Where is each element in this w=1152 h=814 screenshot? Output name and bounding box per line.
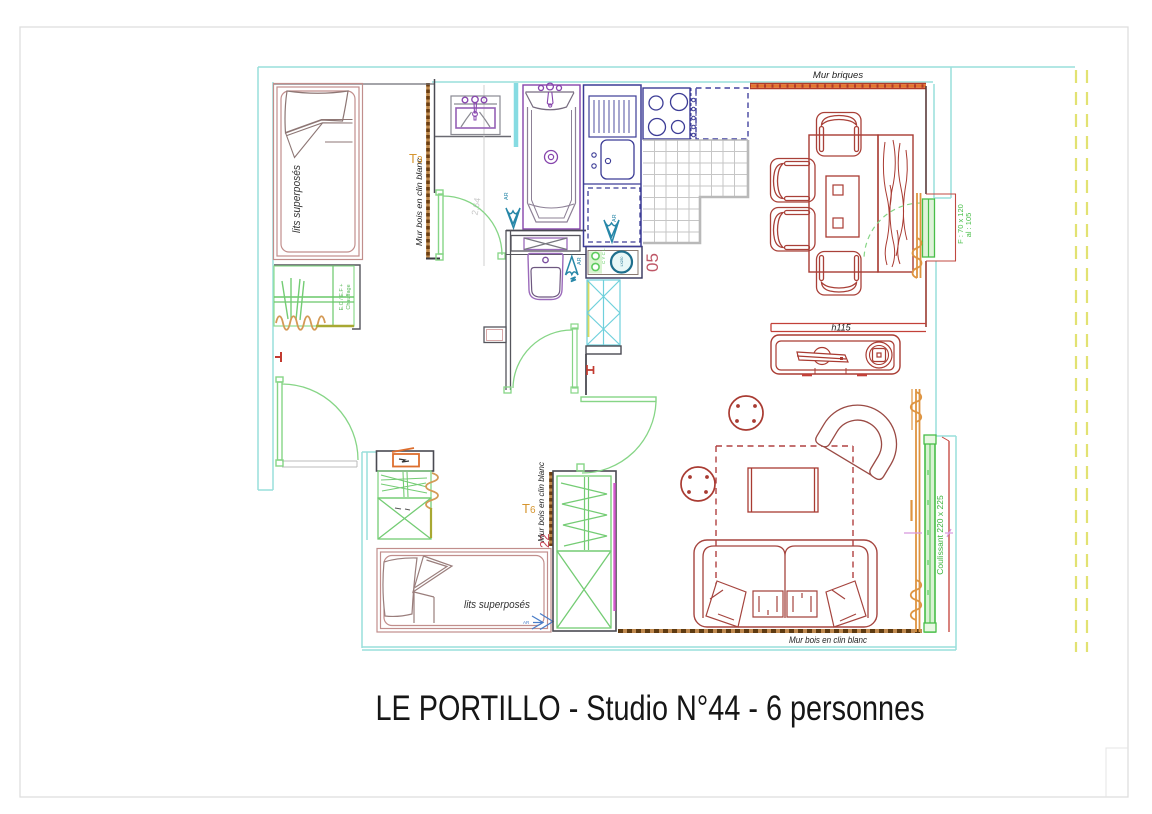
svg-text:LE PORTILLO - Studio N°44 - 6: LE PORTILLO - Studio N°44 - 6 personnes <box>376 689 925 728</box>
svg-text:Mur bois en clin blanc: Mur bois en clin blanc <box>415 158 424 246</box>
svg-text:05: 05 <box>643 253 662 272</box>
svg-text:lits superposés: lits superposés <box>291 165 303 233</box>
svg-text:Chauffage: Chauffage <box>346 284 352 309</box>
svg-text:Mur briques: Mur briques <box>813 70 863 81</box>
svg-text:AR: AR <box>523 620 530 625</box>
svg-text:AR: AR <box>612 214 618 222</box>
svg-text:AR: AR <box>504 192 510 200</box>
svg-text:Coulissant 220 x 225: Coulissant 220 x 225 <box>935 495 945 575</box>
svg-text:h115: h115 <box>831 323 851 333</box>
svg-text:Mur bois en clin blanc: Mur bois en clin blanc <box>537 462 546 542</box>
svg-text:LX250: LX250 <box>620 256 624 266</box>
svg-text:al : 105: al : 105 <box>964 213 973 238</box>
svg-text:C Y C L: C Y C L <box>601 248 606 264</box>
svg-text:Mur bois en clin blanc: Mur bois en clin blanc <box>789 635 867 645</box>
svg-text:lits superposés: lits superposés <box>464 599 530 611</box>
svg-text:AR: AR <box>577 257 583 265</box>
svg-text:E.C / E.F +: E.C / E.F + <box>339 283 345 310</box>
